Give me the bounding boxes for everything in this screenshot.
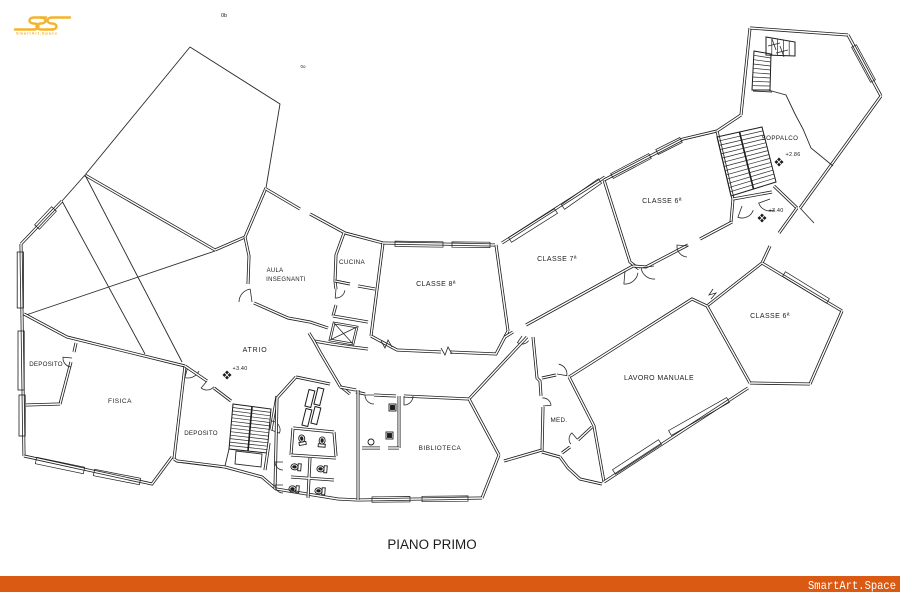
svg-text:+2.86: +2.86 <box>786 152 801 158</box>
svg-text:FISICA: FISICA <box>108 398 132 405</box>
svg-text:DEPOSITO: DEPOSITO <box>184 430 217 437</box>
svg-text:DEPOSITO: DEPOSITO <box>29 361 62 368</box>
svg-text:+3.40: +3.40 <box>233 366 248 372</box>
svg-text:0b: 0b <box>221 13 227 19</box>
svg-text:CLASSE 6ª: CLASSE 6ª <box>750 313 790 320</box>
svg-text:AULA: AULA <box>267 268 284 274</box>
svg-text:SOPPALCO: SOPPALCO <box>762 135 799 142</box>
svg-text:LAVORO MANUALE: LAVORO MANUALE <box>624 375 694 382</box>
svg-text:SmartArt.Space: SmartArt.Space <box>808 579 896 592</box>
svg-text:ATRIO: ATRIO <box>243 347 268 354</box>
svg-text:BIBLIOTECA: BIBLIOTECA <box>419 445 462 452</box>
svg-text:INSEGNANTI: INSEGNANTI <box>266 277 306 283</box>
svg-text:CLASSE 8ª: CLASSE 8ª <box>416 281 456 288</box>
svg-text:SmartArt.Space: SmartArt.Space <box>16 31 58 36</box>
svg-text:CLASSE 6ª: CLASSE 6ª <box>642 198 682 205</box>
svg-text:MED.: MED. <box>551 417 568 424</box>
svg-text:PIANO PRIMO: PIANO PRIMO <box>387 537 476 552</box>
svg-text:0o: 0o <box>300 64 306 69</box>
svg-text:CUCINA: CUCINA <box>339 259 365 266</box>
svg-text:CLASSE 7ª: CLASSE 7ª <box>537 256 577 263</box>
